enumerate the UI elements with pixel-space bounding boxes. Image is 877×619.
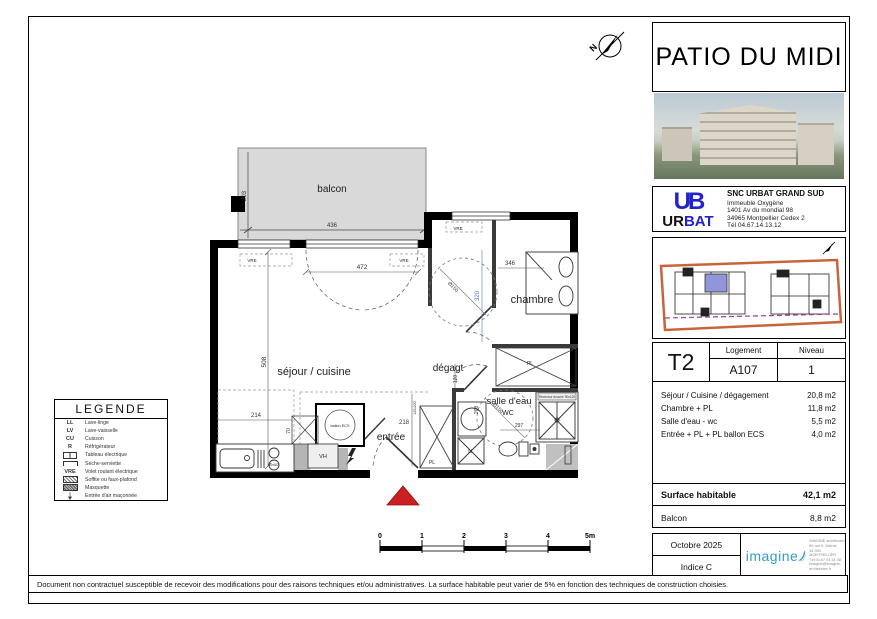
- legend-label: Lave-linge: [85, 420, 109, 426]
- label-vre-2: VRE: [399, 258, 408, 263]
- developer-address-3: 34965 Montpellier Cedex 2: [727, 215, 845, 223]
- legend-row: Soffite ou faux-plafond: [55, 476, 167, 484]
- developer-name: SNC URBAT GRAND SUD: [727, 189, 845, 198]
- dim-218: 218: [399, 420, 410, 426]
- menuiserie-note: 120x220: [413, 401, 417, 414]
- surface-label: Surface habitable: [661, 490, 736, 500]
- legend-symbol-cu: CU: [55, 436, 85, 442]
- surface-value: 42,1 m2: [803, 490, 836, 500]
- label-ll: LL: [468, 449, 474, 455]
- label-entree: entrée: [377, 432, 406, 443]
- toilet: [499, 442, 539, 456]
- site-dashed-line: [665, 314, 839, 318]
- legend-symbol-r: R: [55, 444, 85, 450]
- revision-date: Octobre 2025: [653, 534, 740, 556]
- scale-3: 3: [504, 533, 508, 540]
- developer-address-2: 1401 Av du mondial 98: [727, 207, 845, 215]
- legend-label: Volet roulant électrique: [85, 469, 138, 475]
- legend-row: LLLave-linge: [55, 419, 167, 427]
- label-chambre: chambre: [511, 294, 554, 306]
- legend-label: Cuisson: [85, 436, 104, 442]
- legend-symbol-ll: LL: [55, 420, 85, 426]
- legend-label: Soffite ou faux-plafond: [85, 477, 137, 483]
- urbat-logo-name: URBAT: [653, 214, 723, 229]
- label-degagement: dégagt: [433, 363, 464, 374]
- revision-block: Octobre 2025 Indice C imagine IMAGINE ar…: [652, 533, 846, 578]
- dim-508: 508: [261, 356, 268, 367]
- label-wc: WC: [502, 410, 514, 417]
- legend-label: Sèche-serviette: [85, 461, 121, 467]
- scale-0: 0: [378, 533, 382, 540]
- legend-label: Entrée d'air maçonnée: [85, 493, 137, 499]
- area-value: 11,8 m2: [808, 402, 836, 415]
- developer-block: UB URBAT SNC URBAT GRAND SUD Immeuble Ox…: [652, 186, 846, 232]
- north-label: N: [587, 42, 599, 54]
- legend-title: LEGENDE: [55, 400, 167, 419]
- logement-value: A107: [710, 359, 777, 381]
- turning-circles: [429, 258, 533, 446]
- label-vre-1: VRE: [247, 258, 256, 263]
- legend-label: Tableau électrique: [85, 452, 127, 458]
- title-block: PATIO DU MIDI: [652, 22, 846, 92]
- developer-address-1: Immeuble Oxygène: [727, 200, 845, 208]
- shower: [536, 392, 578, 442]
- air-inlet-icon: [55, 492, 85, 500]
- dim-472: 472: [357, 264, 368, 271]
- architect-line: 34 000 MONTPELLIER: [809, 549, 845, 558]
- legend-label: Lave-vaisselle: [85, 428, 118, 434]
- masquette-hatch-icon: [55, 484, 85, 491]
- label-vh: VH: [319, 454, 327, 460]
- dim-268: 268: [474, 406, 480, 415]
- legend-row: CUCuisson: [55, 435, 167, 443]
- area-value: 20,8 m2: [807, 389, 836, 402]
- balcony-value: 8,8 m2: [810, 513, 836, 523]
- legend-row: Sèche-serviette: [55, 459, 167, 467]
- revision-dates: Octobre 2025 Indice C: [653, 534, 741, 577]
- dim-214: 214: [251, 413, 262, 419]
- label-vre-3: VRE: [453, 226, 462, 231]
- dim-60x60: 60x60: [268, 463, 278, 467]
- balcony-label: Balcon: [661, 513, 687, 523]
- dim-297: 297: [515, 423, 524, 429]
- disclaimer-text: Document non contractuel susceptible de …: [37, 580, 728, 589]
- floorplan-sheet: { "project": { "title": "PATIO DU MIDI" …: [0, 0, 877, 619]
- area-list: Séjour / Cuisine / dégagement20,8 m2 Cha…: [653, 389, 845, 441]
- developer-phone: Tél 04.67.14.13.12: [727, 222, 845, 230]
- dim-320: 320: [475, 290, 481, 301]
- area-label: Chambre + PL: [661, 402, 808, 415]
- architect-info: IMAGINE architectes 89 rue A. Michel 34 …: [806, 539, 845, 571]
- urbat-logo-mark: UB: [653, 190, 723, 214]
- area-row: Chambre + PL11,8 m2: [653, 402, 845, 415]
- site-north-arrow-icon: [823, 242, 835, 254]
- legend-row: VREVolet roulant électrique: [55, 468, 167, 476]
- legend-row: LVLave-vaisselle: [55, 427, 167, 435]
- legend-label: Masquette: [85, 485, 109, 491]
- site-building-right: [771, 270, 829, 314]
- legend-symbol-lv: LV: [55, 428, 85, 434]
- niveau-label: Niveau: [778, 343, 845, 359]
- project-title: PATIO DU MIDI: [655, 43, 842, 72]
- label-sejour: séjour / cuisine: [277, 366, 350, 378]
- balcony-row: Balcon 8,8 m2: [653, 505, 845, 529]
- label-pl-chambre: PL: [527, 361, 533, 367]
- unit-info-block: T2 Logement A107 Niveau 1 Séjour / Cuisi…: [652, 342, 846, 528]
- dim-346: 346: [505, 261, 516, 267]
- label-balcon: balcon: [317, 184, 346, 195]
- imagine-logo: imagine: [746, 548, 799, 564]
- area-label: Séjour / Cuisine / dégagement: [661, 389, 807, 402]
- label-pl-entree: PL: [429, 460, 435, 466]
- imagine-swoosh-icon: [798, 547, 806, 565]
- urbat-logo-bat: BAT: [684, 213, 714, 230]
- urbat-logo: UB URBAT: [653, 190, 723, 229]
- scale-5m: 5m: [585, 533, 595, 540]
- legend-row: Masquette: [55, 484, 167, 492]
- scale-1: 1: [420, 533, 424, 540]
- scale-4: 4: [546, 533, 550, 540]
- architect-line: imagine@imagine-architectes.fr: [809, 562, 845, 571]
- towel-radiator-icon: [55, 461, 85, 466]
- scale-2: 2: [462, 533, 466, 540]
- logement-label: Logement: [710, 343, 777, 359]
- entrance-arrow: [387, 486, 419, 505]
- area-label: Entrée + PL + PL ballon ECS: [661, 428, 812, 441]
- area-value: 4,0 m2: [812, 428, 836, 441]
- niveau-value: 1: [778, 359, 845, 381]
- area-label: Salle d'eau - wc: [661, 415, 812, 428]
- dim-203: 203: [242, 190, 248, 201]
- disclaimer-bar: Document non contractuel susceptible de …: [28, 575, 848, 593]
- urbat-logo-ur: UR: [662, 213, 684, 230]
- area-row: Séjour / Cuisine / dégagement20,8 m2: [653, 389, 845, 402]
- unit-type: T2: [653, 343, 710, 381]
- project-photo: [654, 93, 844, 179]
- legend-row: Tableau électrique: [55, 451, 167, 459]
- soffit-hatch-icon: [55, 476, 85, 483]
- dim-436: 436: [327, 223, 338, 229]
- dim-diam-1: Ø150: [446, 281, 459, 294]
- area-row: Entrée + PL + PL ballon ECS4,0 m2: [653, 428, 845, 441]
- scale-bar: 0 1 2 3 4 5m: [378, 533, 595, 553]
- logement-col: Logement A107: [710, 343, 777, 381]
- legend-row: RRéfrigérateur: [55, 443, 167, 451]
- legend-label: Réfrigérateur: [85, 444, 115, 450]
- shower-note: Receveur douche 90x120: [539, 395, 576, 399]
- architect-block: imagine IMAGINE architectes 89 rue A. Mi…: [741, 534, 845, 577]
- kitchen-counter: [216, 444, 294, 472]
- site-unit-highlight: [705, 274, 727, 292]
- photo-trees: [654, 149, 844, 179]
- unit-header: T2 Logement A107 Niveau 1: [653, 343, 845, 382]
- site-plan-drawing: [653, 238, 845, 338]
- legend-symbol-vre: VRE: [55, 469, 85, 475]
- legend-row: Entrée d'air maçonnée: [55, 492, 167, 500]
- area-row: Salle d'eau - wc5,5 m2: [653, 415, 845, 428]
- site-plan-block: [652, 237, 846, 339]
- dim-70: 70: [286, 428, 292, 434]
- niveau-col: Niveau 1: [777, 343, 845, 381]
- fridge-box: [292, 416, 318, 444]
- area-value: 5,5 m2: [812, 415, 836, 428]
- north-arrow-icon: N: [587, 32, 624, 60]
- electrical-panel-icon: [55, 452, 85, 459]
- dim-120: 120: [453, 375, 459, 384]
- surface-row: Surface habitable 42,1 m2: [653, 483, 845, 505]
- legend-block: LEGENDE LLLave-linge LVLave-vaisselle CU…: [54, 399, 168, 501]
- developer-info: SNC URBAT GRAND SUD Immeuble Oxygène 140…: [723, 189, 845, 230]
- revision-indice: Indice C: [653, 556, 740, 577]
- label-ballon-ecs: ballon ECS: [331, 424, 350, 428]
